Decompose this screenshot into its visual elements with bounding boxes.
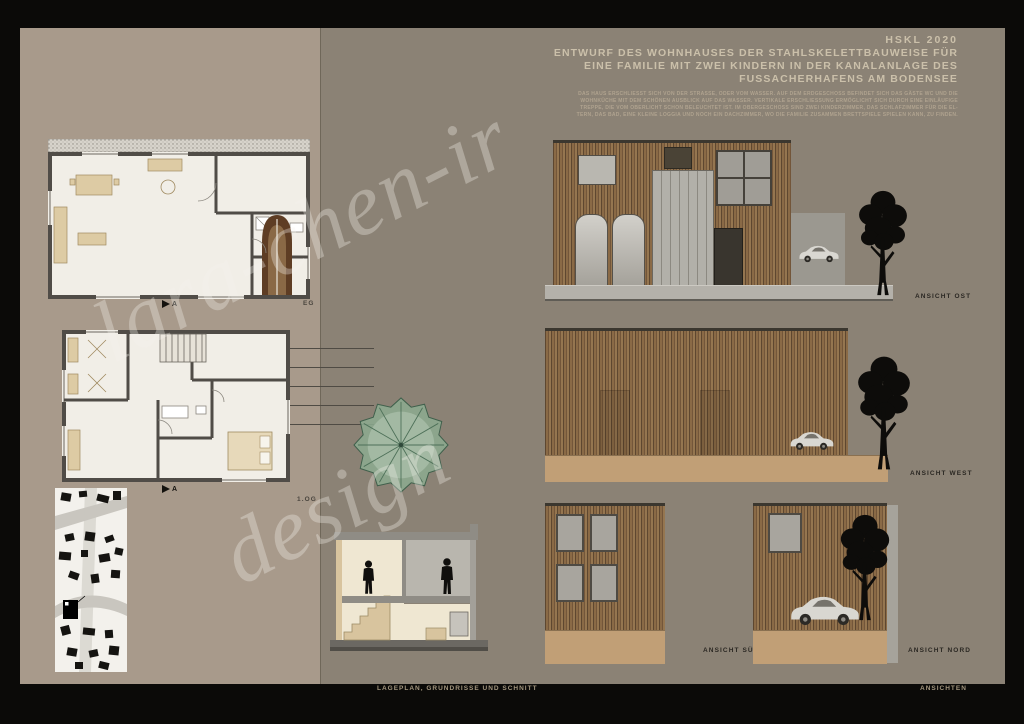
elevation-sued-window	[556, 514, 584, 552]
elevation-nord-window	[768, 513, 802, 553]
elevation-west-opening	[600, 390, 630, 456]
floor-plan-og	[62, 330, 290, 482]
footer-caption-elevations: ANSICHTEN	[920, 685, 967, 692]
tree-silhouette	[852, 188, 914, 298]
description-line: DAS HAUS ERSCHLIESST SICH VON DER STRASS…	[398, 91, 958, 98]
elevation-ost-platform	[545, 285, 893, 301]
elevation-ost-large-window	[716, 150, 772, 206]
site-plan-drawing	[55, 488, 127, 672]
plan-label-eg: EG	[303, 300, 315, 307]
elevation-ost-entry-glazing	[652, 170, 714, 287]
elevation-nord-base-band	[753, 630, 887, 664]
section-arrow-icon	[162, 300, 170, 308]
elevation-ost-arch-panel	[575, 214, 608, 286]
elevation-sued-window	[590, 564, 618, 602]
header: HSKL 2020 ENTWURF DES WOHNHAUSES DER STA…	[398, 34, 958, 119]
site-plan	[55, 488, 127, 672]
tree-silhouette	[836, 505, 894, 630]
section-drawing	[330, 500, 488, 658]
project-title-line: ENTWURF DES WOHNHAUSES DER STAHLSKELETTB…	[398, 47, 958, 60]
elevation-west-opening	[700, 390, 730, 456]
tree-plan-sketch	[352, 396, 450, 494]
project-title-line: FUSSACHERHAFENS AM BODENSEE	[398, 73, 958, 86]
car-silhouette	[788, 426, 836, 456]
tree-silhouette	[853, 348, 915, 478]
section-drawing-svg	[330, 500, 488, 658]
jetty-line	[290, 348, 374, 349]
description-line: TERN, DAS BAD, EINE KLEINE LOGGIA UND NO…	[398, 112, 958, 119]
elevation-sued-base-band	[545, 630, 665, 664]
elevation-ost-arch-panel	[612, 214, 645, 286]
elevation-nord-label: ANSICHT NORD	[908, 647, 971, 654]
footer-caption-plans: LAGEPLAN, GRUNDRISSE UND SCHNITT	[377, 685, 538, 692]
description-line: WOHNKÜCHE MIT DEM SCHÖNEN AUSBLICK AUF D…	[398, 98, 958, 105]
elevation-ost-door	[714, 228, 743, 287]
description-line: TREPPE, DIE VOM OBERLICHT SCHON BELEUCHT…	[398, 105, 958, 112]
section-marker-label: A	[172, 301, 177, 308]
project-description: DAS HAUS ERSCHLIESST SICH VON DER STRASS…	[398, 91, 958, 119]
floor-plan-eg-drawing	[48, 139, 310, 299]
section-marker-label: A	[172, 486, 177, 493]
elevation-sued-window	[556, 564, 584, 602]
jetty-line	[290, 367, 374, 368]
section-marker-a-top: A	[162, 300, 177, 308]
section-arrow-icon	[162, 485, 170, 493]
floor-plan-eg	[48, 139, 310, 299]
jetty-line	[290, 386, 374, 387]
car-silhouette	[797, 240, 841, 268]
elevation-west-label: ANSICHT WEST	[910, 470, 973, 477]
plan-label-og: 1.OG	[297, 496, 317, 503]
elevation-sued-window	[590, 514, 618, 552]
elevation-ost-label: ANSICHT OST	[915, 293, 971, 300]
elevation-sued-label: ANSICHT SÜD	[703, 647, 760, 654]
section-marker-a-bottom: A	[162, 485, 177, 493]
elevation-ost-window	[578, 155, 616, 185]
project-title-line: EINE FAMILIE MIT ZWEI KINDERN IN DER KAN…	[398, 60, 958, 73]
tree-plan-drawing	[352, 396, 450, 494]
elevation-ost-high-window	[664, 147, 692, 169]
project-code: HSKL 2020	[398, 34, 958, 47]
floor-plan-og-drawing	[62, 330, 290, 482]
elevation-west-base-band	[545, 455, 888, 482]
presentation-board: HSKL 2020 ENTWURF DES WOHNHAUSES DER STA…	[0, 0, 1024, 724]
